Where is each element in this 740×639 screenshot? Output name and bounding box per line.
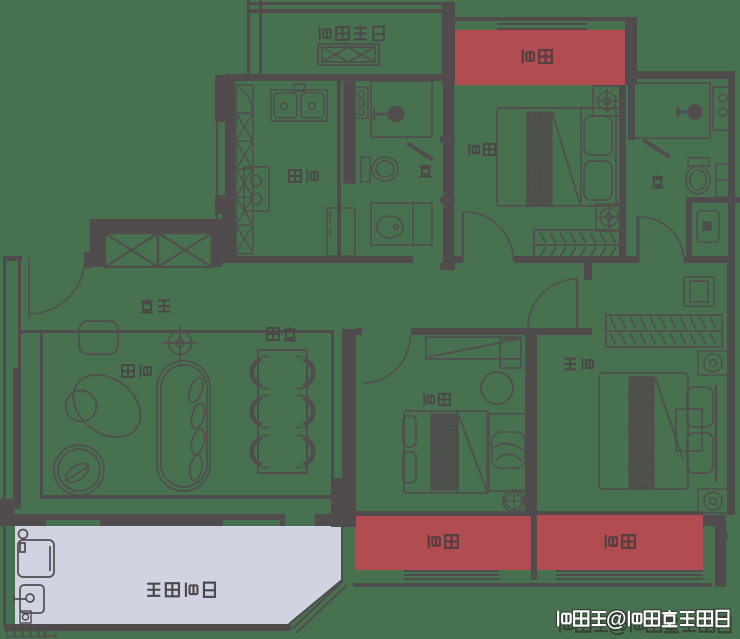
- svg-text:@: @: [606, 608, 626, 631]
